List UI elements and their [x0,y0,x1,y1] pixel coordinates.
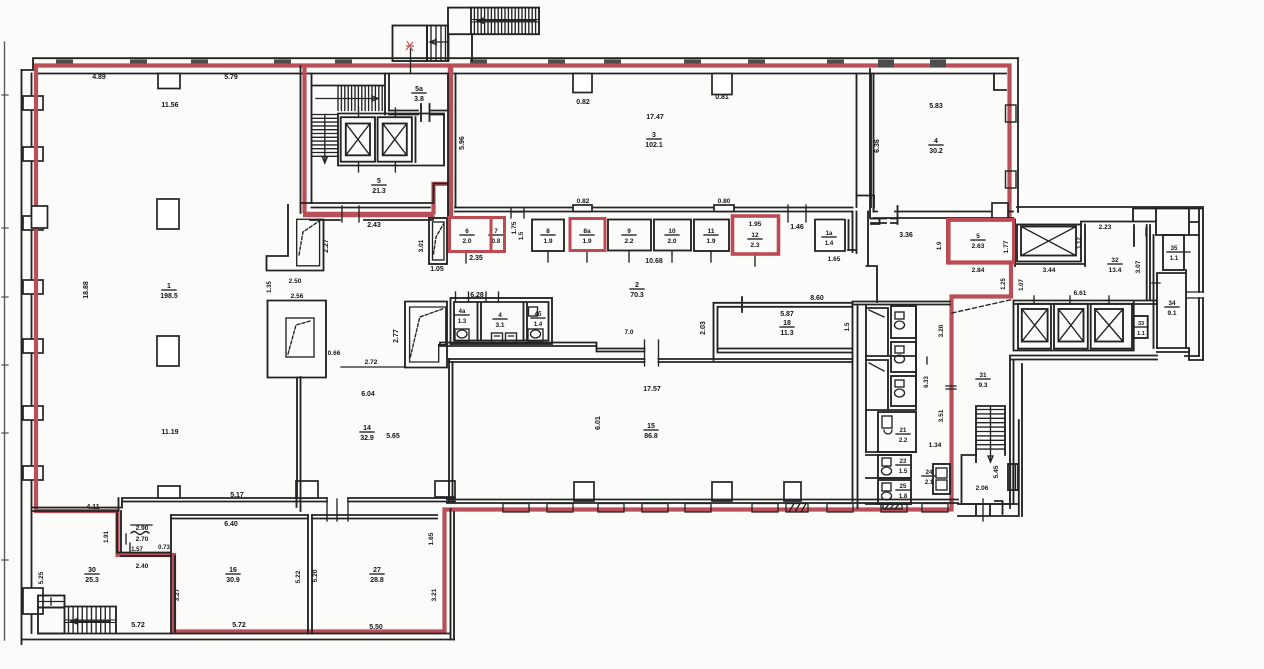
svg-text:70.3: 70.3 [630,292,644,299]
svg-text:0.8: 0.8 [492,239,501,245]
svg-text:1.9: 1.9 [937,241,943,250]
svg-text:1.95: 1.95 [749,221,762,228]
svg-text:30: 30 [88,567,96,574]
svg-text:5.72: 5.72 [232,622,246,629]
svg-text:2.0: 2.0 [667,238,676,245]
svg-text:18.88: 18.88 [83,281,90,299]
svg-text:1.4: 1.4 [825,241,834,247]
svg-text:1.46: 1.46 [790,224,804,231]
svg-text:5.96: 5.96 [459,136,466,150]
svg-text:2.40: 2.40 [136,563,149,570]
svg-text:6.04: 6.04 [361,391,375,398]
svg-text:5.45: 5.45 [993,465,1000,478]
svg-text:6: 6 [465,228,469,235]
svg-text:1.75: 1.75 [511,221,518,234]
svg-text:33: 33 [1138,321,1144,327]
svg-text:3.01: 3.01 [418,239,425,252]
svg-text:6.36: 6.36 [874,139,881,153]
svg-text:1.9: 1.9 [706,238,715,245]
svg-text:6.61: 6.61 [1074,290,1087,297]
svg-text:4: 4 [934,138,938,145]
svg-text:2.56: 2.56 [291,293,304,300]
svg-text:2.50: 2.50 [289,278,302,285]
svg-text:1.65: 1.65 [428,532,435,545]
svg-text:15: 15 [647,423,655,430]
svg-text:5: 5 [976,233,980,240]
svg-text:0.82: 0.82 [577,198,590,205]
svg-text:3.44: 3.44 [1043,267,1056,274]
svg-text:9.1: 9.1 [1167,310,1176,317]
svg-text:198.5: 198.5 [160,293,178,300]
svg-text:5.25: 5.25 [38,571,45,584]
svg-text:2.35: 2.35 [469,255,483,262]
svg-text:3.27: 3.27 [174,588,181,601]
svg-text:11: 11 [708,228,715,235]
svg-text:10: 10 [668,228,676,235]
svg-text:21.3: 21.3 [372,188,386,195]
svg-text:3.36: 3.36 [899,232,913,239]
svg-text:4а: 4а [459,309,466,315]
svg-text:1.3: 1.3 [458,319,467,325]
svg-text:1.35: 1.35 [267,281,273,293]
svg-text:5а: 5а [415,86,423,93]
svg-text:2.27: 2.27 [323,239,330,253]
svg-text:2.03: 2.03 [700,321,707,335]
svg-text:2.63: 2.63 [972,243,985,250]
svg-text:2.43: 2.43 [367,222,381,229]
svg-text:21: 21 [900,428,907,434]
svg-text:35: 35 [1171,246,1178,252]
svg-text:4: 4 [498,312,502,319]
svg-text:2.1: 2.1 [925,480,934,486]
svg-text:1.9: 1.9 [543,238,552,245]
svg-text:1.5: 1.5 [844,322,851,331]
svg-text:30.9: 30.9 [226,577,240,584]
svg-text:8а: 8а [583,228,591,235]
svg-text:5.79: 5.79 [224,74,238,81]
svg-text:1.1: 1.1 [1170,256,1179,262]
svg-text:2.06: 2.06 [976,485,989,492]
svg-text:1.9: 1.9 [582,238,591,245]
svg-text:32: 32 [1111,257,1119,264]
svg-text:5.72: 5.72 [131,622,145,629]
svg-text:1а: 1а [826,231,833,237]
svg-text:3.20: 3.20 [938,324,945,337]
svg-text:0.66: 0.66 [328,350,341,357]
svg-text:6.40: 6.40 [224,521,238,528]
svg-text:2.23: 2.23 [1099,224,1112,231]
svg-text:1: 1 [167,283,171,290]
svg-text:1.05: 1.05 [430,266,444,273]
svg-text:3.21: 3.21 [431,588,438,601]
svg-text:14: 14 [363,425,371,432]
svg-text:8.60: 8.60 [810,295,824,302]
svg-text:2.2: 2.2 [899,438,908,444]
svg-text:5: 5 [377,178,381,185]
svg-text:1.4: 1.4 [534,322,543,328]
svg-text:86.8: 86.8 [644,433,658,440]
svg-text:3: 3 [652,132,656,139]
svg-text:2.84: 2.84 [972,267,985,274]
svg-text:2.3: 2.3 [750,242,759,249]
svg-text:32.9: 32.9 [360,435,374,442]
svg-text:3.1: 3.1 [495,322,504,329]
svg-text:11.56: 11.56 [161,102,178,109]
svg-text:17.47: 17.47 [646,114,664,121]
svg-text:6.33: 6.33 [924,376,930,388]
svg-text:30.2: 30.2 [929,148,943,155]
svg-text:1.12: 1.12 [1077,237,1083,249]
svg-text:18: 18 [783,320,791,327]
svg-text:11.3: 11.3 [780,330,793,337]
svg-text:11.19: 11.19 [161,429,178,436]
svg-text:5.65: 5.65 [386,433,400,440]
svg-text:1.5: 1.5 [899,469,908,475]
svg-text:1.91: 1.91 [104,531,110,543]
svg-text:9: 9 [627,228,631,235]
svg-text:0.80: 0.80 [718,198,731,205]
svg-text:1.25: 1.25 [1001,278,1007,290]
svg-text:5.22: 5.22 [295,570,302,583]
svg-text:2.2: 2.2 [624,238,633,245]
svg-text:4б: 4б [534,311,541,318]
svg-text:12: 12 [751,232,759,239]
svg-text:102.1: 102.1 [645,142,663,149]
svg-text:2.72: 2.72 [365,359,378,366]
svg-text:17.57: 17.57 [643,386,661,393]
svg-text:3.51: 3.51 [938,409,945,422]
svg-text:16: 16 [229,567,237,574]
svg-text:1.5: 1.5 [519,231,525,240]
svg-text:13.4: 13.4 [1109,267,1122,274]
svg-text:1.1: 1.1 [1137,331,1145,337]
svg-text:6.01: 6.01 [595,416,602,430]
svg-text:1.77: 1.77 [1003,240,1010,253]
svg-text:24: 24 [926,470,933,476]
svg-text:3.07: 3.07 [1135,260,1142,273]
svg-text:27: 27 [373,567,381,574]
svg-text:2.77: 2.77 [393,329,400,343]
svg-text:25: 25 [900,484,907,490]
svg-text:1.07: 1.07 [1019,279,1025,291]
svg-text:6.28: 6.28 [470,292,484,299]
svg-text:3.8: 3.8 [414,96,424,103]
svg-text:5.20: 5.20 [312,569,319,582]
svg-text:1.8: 1.8 [899,494,908,500]
svg-text:1.65: 1.65 [828,256,841,263]
svg-text:1.34: 1.34 [929,442,942,449]
svg-text:23: 23 [900,459,907,465]
svg-text:25.3: 25.3 [85,577,99,584]
svg-text:5.87: 5.87 [780,311,794,318]
svg-text:2.70: 2.70 [136,536,149,543]
svg-text:2.0: 2.0 [462,238,471,245]
svg-text:8: 8 [546,228,550,235]
svg-text:10.68: 10.68 [645,258,663,265]
svg-text:0.82: 0.82 [576,99,590,106]
svg-text:0.73: 0.73 [158,545,170,551]
svg-text:31: 31 [979,372,987,379]
svg-text:34: 34 [1168,300,1176,307]
svg-text:5.83: 5.83 [929,103,943,110]
svg-text:7.0: 7.0 [624,329,633,336]
svg-text:4.89: 4.89 [92,74,106,81]
svg-text:1.57: 1.57 [131,547,143,553]
svg-text:2: 2 [635,282,639,289]
svg-text:28.8: 28.8 [370,577,384,584]
svg-text:9.3: 9.3 [978,382,987,389]
svg-text:5.50: 5.50 [369,624,383,631]
